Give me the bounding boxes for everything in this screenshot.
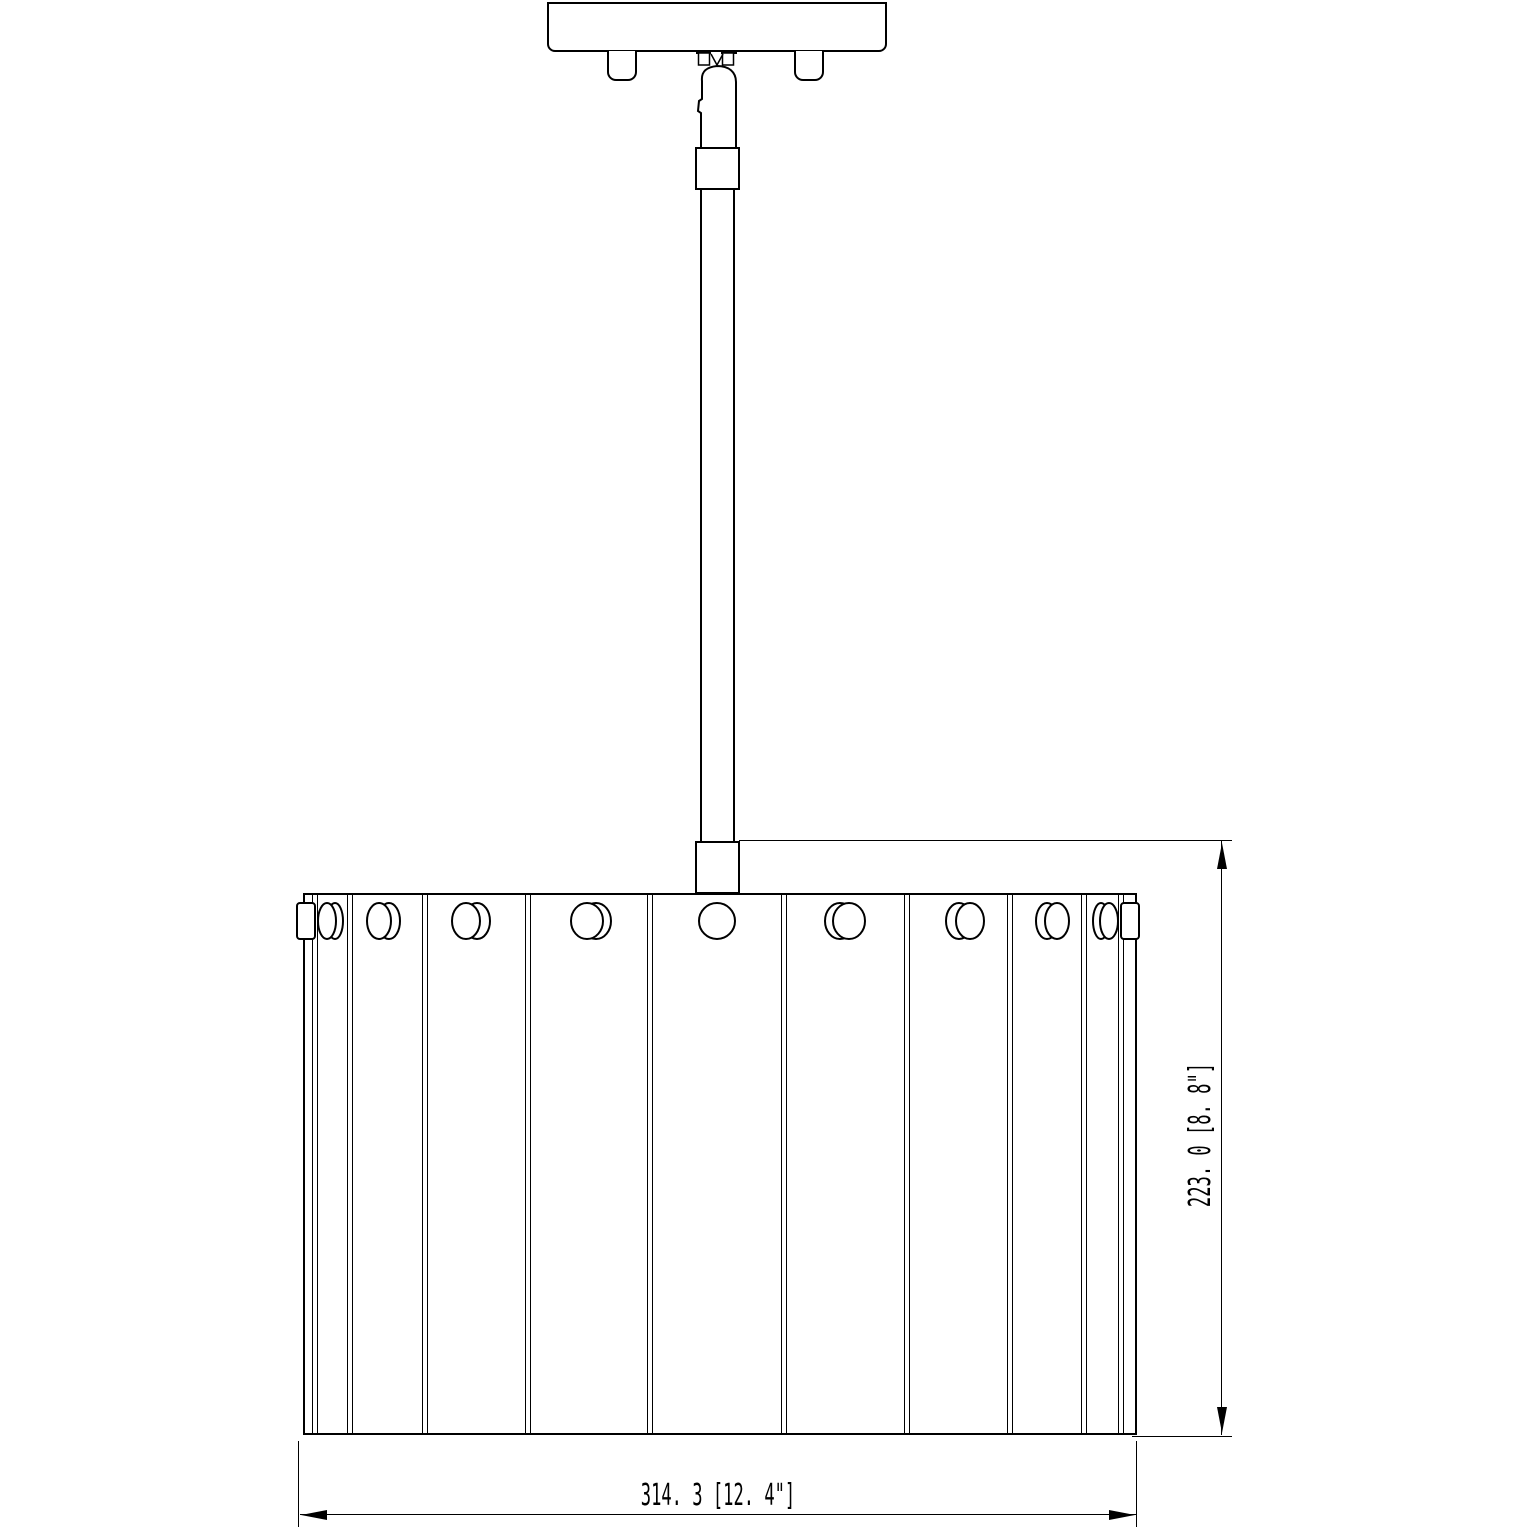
height-extension-line-top (739, 840, 1232, 841)
knob-front-ellipse (571, 903, 603, 939)
collar-tab-right (723, 53, 734, 65)
collar-tab-left (699, 53, 710, 65)
width-extension-line-left (298, 1441, 299, 1527)
panel-divider (1081, 895, 1087, 1433)
panel-divider (1118, 895, 1124, 1433)
ceiling-canopy-plate (547, 2, 887, 52)
knob-front-ellipse (318, 903, 336, 939)
panel-divider (422, 895, 428, 1433)
knob-front-ellipse (956, 903, 984, 939)
height-dimension-line (1221, 841, 1222, 1435)
panel-divider (904, 895, 910, 1433)
swivel-body (698, 66, 736, 150)
knob-front-ellipse (1100, 903, 1118, 939)
height-arrow-up (1217, 843, 1227, 869)
canopy-screw-boss-left (607, 51, 637, 81)
width-arrow-left (301, 1510, 327, 1520)
panel-knobs (300, 897, 1140, 947)
panel-divider (312, 895, 318, 1433)
knob-front-ellipse (1045, 903, 1069, 939)
hang-straight-swivel (692, 50, 744, 152)
panel-divider (347, 895, 353, 1433)
height-arrow-down (1217, 1407, 1227, 1433)
stem-coupler (695, 147, 740, 190)
panel-divider (1007, 895, 1013, 1433)
knob-front-ellipse (452, 903, 480, 939)
height-extension-line-bottom (1132, 1436, 1232, 1437)
knob-front-ellipse (367, 903, 391, 939)
technical-drawing-canvas: 223. 0 [8. 8"] 314. 3 [12. 4"] (0, 0, 1528, 1528)
width-arrow-right (1109, 1510, 1135, 1520)
width-dimension-label: 314. 3 [12. 4"] (641, 1481, 795, 1511)
down-rod-stem (700, 188, 735, 843)
width-dimension-line (300, 1514, 1136, 1515)
panel-divider (525, 895, 531, 1433)
knob-front-ellipse (833, 903, 865, 939)
height-dimension-label: 223. 0 [8. 8"] (1186, 1063, 1216, 1207)
width-extension-line-right (1136, 1441, 1137, 1527)
shade-stem-connector (695, 841, 740, 894)
wire-loop (711, 54, 723, 65)
canopy-screw-boss-right (794, 51, 824, 81)
knob-front-ellipse (699, 903, 735, 939)
panel-divider (781, 895, 787, 1433)
panel-divider (647, 895, 653, 1433)
